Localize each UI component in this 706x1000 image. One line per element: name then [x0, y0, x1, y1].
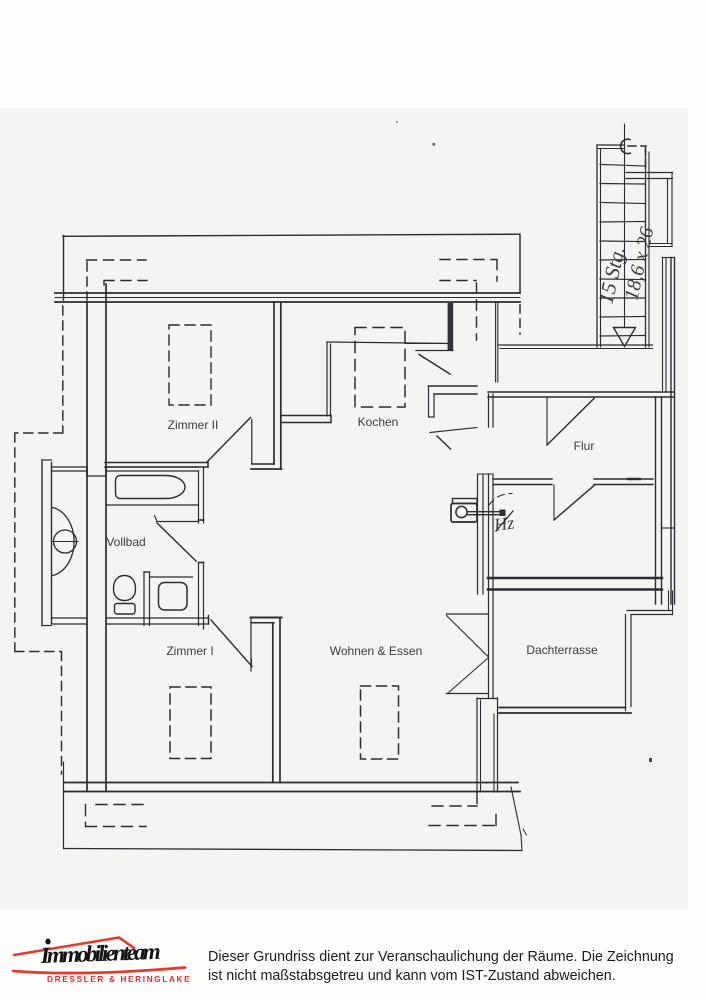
svg-text:Dieser Grundriss dient zur Ver: Dieser Grundriss dient zur Veranschaulic… [208, 949, 674, 965]
svg-text:Zimmer I: Zimmer I [166, 644, 213, 658]
svg-text:Vollbad: Vollbad [106, 535, 145, 549]
svg-text:Flur: Flur [574, 439, 595, 453]
svg-text:Kochen: Kochen [358, 415, 399, 429]
svg-text:Immobilienteam: Immobilienteam [39, 939, 161, 968]
svg-text:DRESSLER & HERINGLAKE: DRESSLER & HERINGLAKE [47, 974, 191, 984]
svg-text:Hz: Hz [492, 512, 516, 535]
svg-text:ist nicht maßstabsgetreu und k: ist nicht maßstabsgetreu und kann vom IS… [208, 968, 616, 984]
svg-text:Dachterrasse: Dachterrasse [526, 643, 598, 657]
svg-text:Wohnen & Essen: Wohnen & Essen [330, 644, 423, 658]
svg-text:Zimmer II: Zimmer II [168, 418, 219, 432]
